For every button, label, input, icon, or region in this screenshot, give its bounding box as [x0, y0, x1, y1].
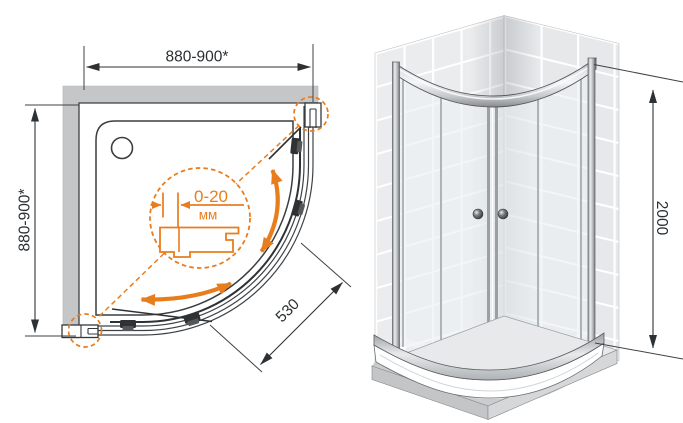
door-knob-left: [473, 209, 483, 219]
roller-bracket: [291, 199, 306, 217]
drain-icon: [112, 138, 133, 159]
plan-view: 880-900* 880-900* 530: [17, 44, 352, 372]
dim-530-label: 530: [273, 295, 304, 326]
adjustment-value: 0-20: [194, 187, 228, 206]
dim-left-label: 880-900*: [17, 189, 34, 252]
door-knob-right: [498, 209, 508, 219]
wall-profile-top-right: [305, 103, 321, 128]
dim-top-label: 880-900*: [166, 49, 229, 66]
wall-post-right: [588, 58, 595, 348]
dim-2000-label: 2000: [653, 201, 670, 236]
wall-post-left: [393, 62, 400, 350]
technical-drawing: 880-900* 880-900* 530: [0, 0, 683, 423]
profile-section-detail: [160, 228, 239, 258]
roller-bracket: [120, 320, 136, 331]
isometric-view: 2000: [372, 16, 683, 420]
drawing-canvas: 880-900* 880-900* 530: [0, 0, 683, 423]
adjustment-unit: мм: [199, 208, 218, 223]
